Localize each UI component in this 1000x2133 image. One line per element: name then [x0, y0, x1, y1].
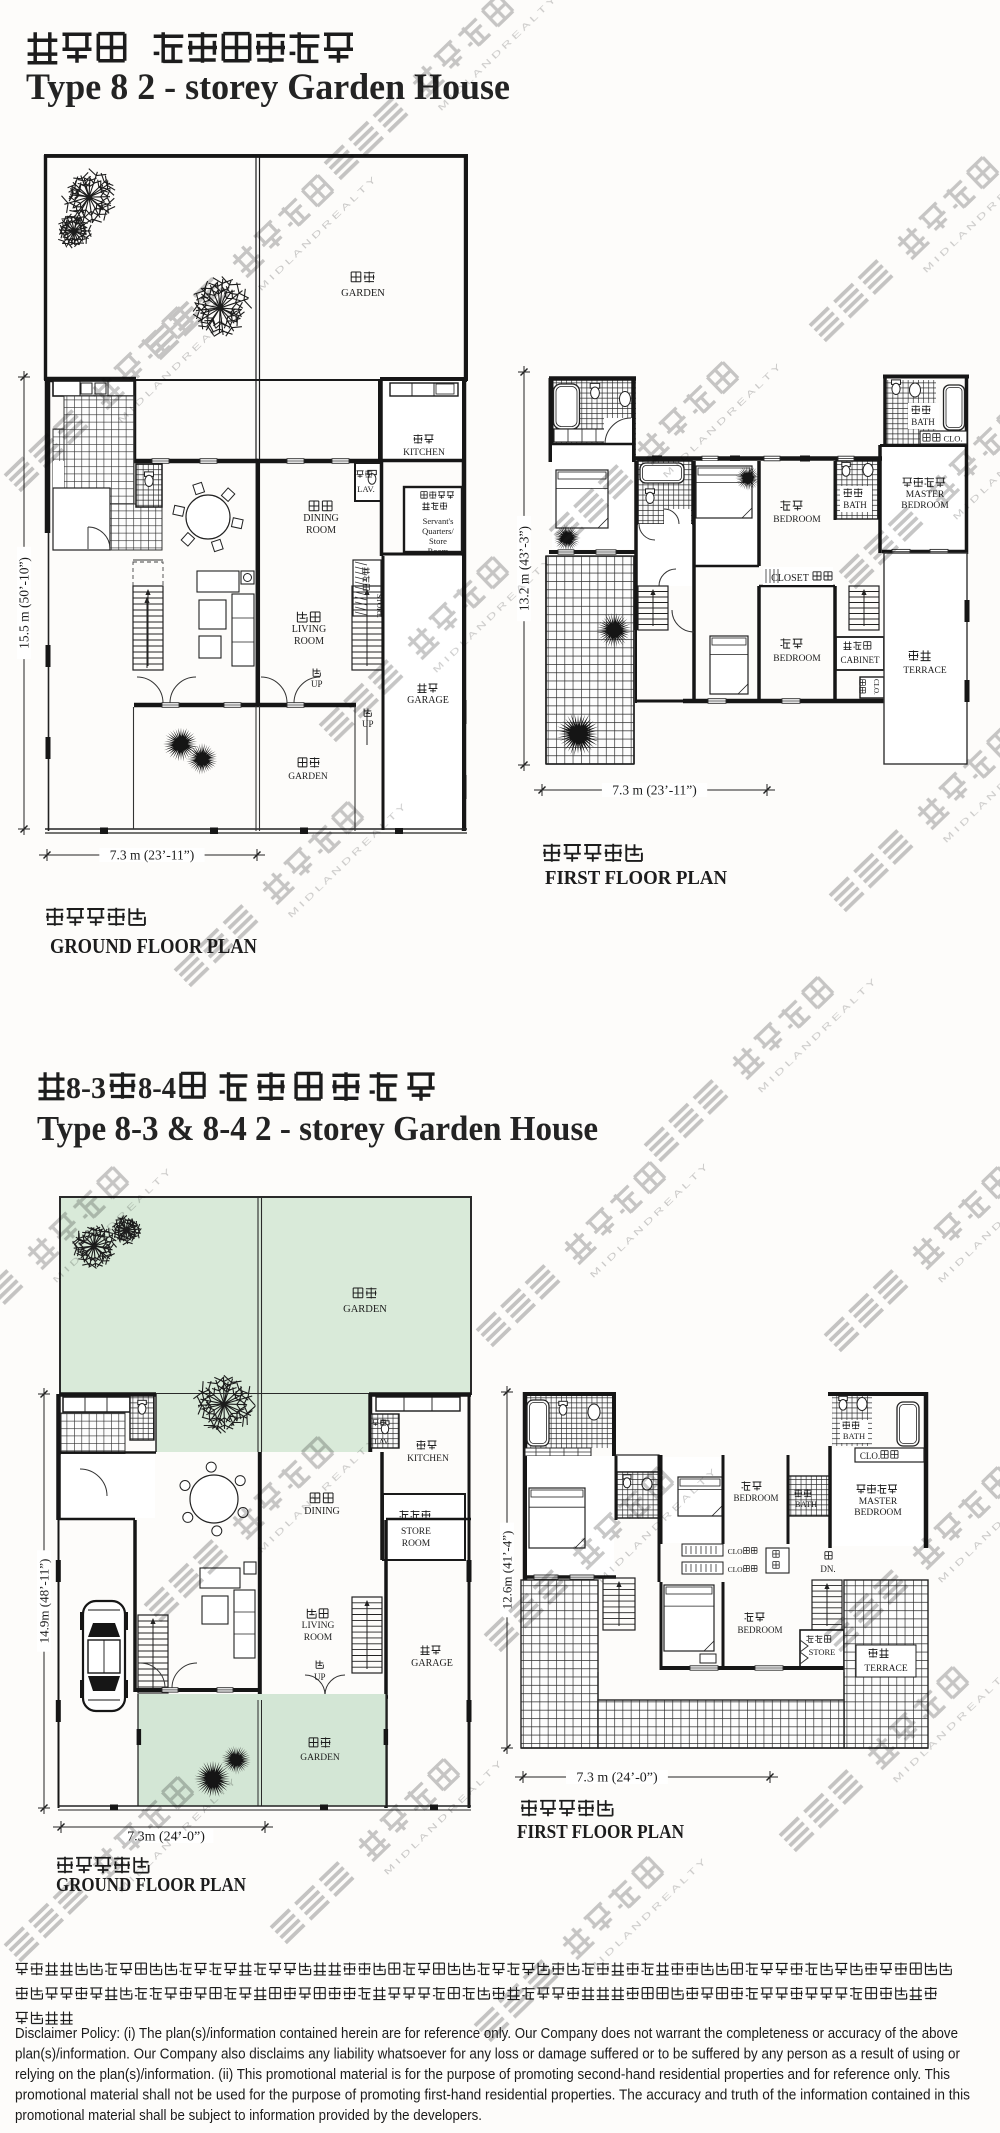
svg-text:plan(s)/information. Our Compa: plan(s)/information. Our Company also di…	[15, 2047, 960, 2063]
svg-text:BEDROOM: BEDROOM	[737, 1625, 782, 1635]
svg-text:BATH: BATH	[843, 1431, 865, 1441]
svg-text:CLO.: CLO.	[728, 1547, 745, 1556]
svg-text:CLOSET: CLOSET	[771, 573, 809, 584]
svg-text:MASTER: MASTER	[859, 1497, 898, 1507]
svg-text:Quarters/: Quarters/	[422, 526, 454, 536]
svg-text:BEDROOM: BEDROOM	[773, 654, 821, 664]
svg-text:CLO.: CLO.	[728, 1565, 745, 1574]
svg-text:BATH: BATH	[911, 417, 935, 427]
svg-text:15.5 m (50’-10”): 15.5 m (50’-10”)	[17, 557, 32, 649]
svg-text:CLO.: CLO.	[943, 434, 962, 444]
svg-text:UP: UP	[314, 1672, 326, 1682]
svg-text:8-3: 8-3	[66, 1070, 106, 1105]
svg-text:7.3 m (23’-11”): 7.3 m (23’-11”)	[612, 783, 697, 798]
svg-text:14.9m (48’-11”): 14.9m (48’-11”)	[37, 1559, 52, 1644]
svg-text:CLO.: CLO.	[860, 1451, 880, 1461]
svg-text:GROUND FLOOR PLAN: GROUND FLOOR PLAN	[50, 934, 257, 958]
svg-text:STORE: STORE	[401, 1527, 431, 1537]
svg-text:promotional material shall not: promotional material shall not be used f…	[15, 2088, 970, 2104]
svg-text:LIVING: LIVING	[292, 624, 326, 635]
svg-text:BEDROOM: BEDROOM	[733, 1493, 778, 1503]
svg-text:TERRACE: TERRACE	[864, 1664, 907, 1674]
svg-text:BEDROOM: BEDROOM	[773, 515, 821, 525]
svg-text:DINING: DINING	[303, 513, 339, 524]
svg-text:DN.: DN.	[820, 1564, 835, 1574]
svg-text:GARDEN: GARDEN	[300, 1753, 340, 1763]
svg-text:GARDEN: GARDEN	[288, 772, 328, 782]
svg-text:GARDEN: GARDEN	[343, 1304, 387, 1315]
svg-text:BATH: BATH	[795, 1499, 817, 1509]
svg-text:promotional material shall be: promotional material shall be subject to…	[15, 2108, 482, 2124]
svg-text:BEDROOM: BEDROOM	[854, 1508, 902, 1518]
svg-text:8-4: 8-4	[138, 1070, 176, 1105]
svg-text:ROOM: ROOM	[306, 525, 336, 536]
svg-text:FIRST FLOOR PLAN: FIRST FLOOR PLAN	[517, 1821, 684, 1843]
svg-text:Type 8-3 & 8-4 2 - storey Gar: Type 8-3 & 8-4 2 - storey Garden House	[37, 1109, 598, 1148]
svg-text:ROOM: ROOM	[294, 636, 324, 647]
svg-text:KITCHEN: KITCHEN	[407, 1454, 449, 1464]
svg-text:GARAGE: GARAGE	[411, 1658, 453, 1669]
svg-text:GARAGE: GARAGE	[407, 695, 449, 706]
svg-text:CLO.: CLO.	[872, 679, 880, 695]
svg-text:GARDEN: GARDEN	[341, 288, 385, 299]
svg-text:7.3 m (23’-11”): 7.3 m (23’-11”)	[110, 848, 195, 863]
svg-text:LIVING: LIVING	[302, 1621, 335, 1631]
svg-text:12.6m (41’-4”): 12.6m (41’-4”)	[500, 1531, 515, 1610]
svg-text:ROOM: ROOM	[402, 1539, 431, 1549]
svg-text:BATH: BATH	[843, 500, 867, 510]
svg-text:FIRST FLOOR PLAN: FIRST FLOOR PLAN	[545, 867, 728, 889]
svg-text:GROUND FLOOR PLAN: GROUND FLOOR PLAN	[56, 1874, 246, 1896]
svg-text:UP: UP	[362, 719, 374, 729]
svg-text:Store: Store	[429, 536, 447, 546]
svg-text:KITCHEN: KITCHEN	[403, 448, 445, 458]
svg-text:7.3 m (24’-0”): 7.3 m (24’-0”)	[576, 1771, 658, 1786]
svg-text:relying on the plan(s)/informa: relying on the plan(s)/information. (ii)…	[15, 2067, 950, 2083]
svg-text:CABINET: CABINET	[841, 655, 880, 665]
svg-text:LAV.: LAV.	[357, 484, 374, 494]
svg-text:UP: UP	[311, 679, 323, 689]
svg-text:13.2 m (43’-3”): 13.2 m (43’-3”)	[517, 526, 532, 611]
svg-text:Servant's: Servant's	[423, 516, 454, 526]
svg-text:STORE: STORE	[809, 1647, 836, 1657]
svg-text:ROOM: ROOM	[304, 1633, 333, 1643]
svg-text:TERRACE: TERRACE	[903, 666, 946, 676]
